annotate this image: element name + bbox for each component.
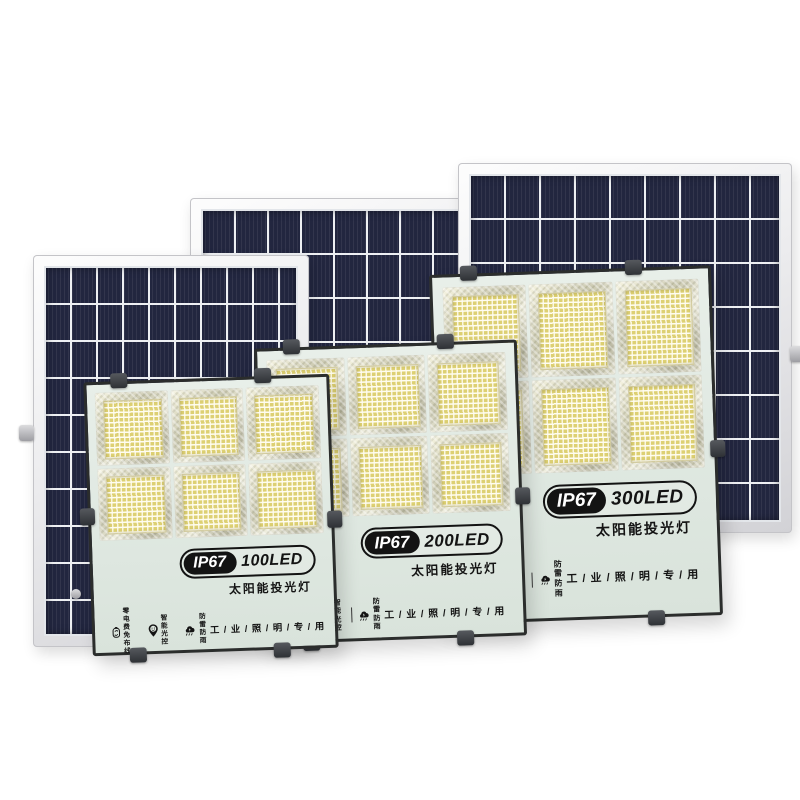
led-board xyxy=(181,472,241,532)
feature-separator xyxy=(177,623,178,638)
led-board xyxy=(359,445,424,510)
mounting-bracket xyxy=(790,346,800,362)
led-module xyxy=(170,388,245,463)
feature-line: 防雨 xyxy=(199,629,210,645)
battery-recycle-icon xyxy=(112,623,121,641)
mount-clip xyxy=(515,487,531,505)
feature-separator xyxy=(141,624,142,639)
feature-line: 防雷 xyxy=(373,597,385,614)
feature-separator xyxy=(351,608,352,623)
led-board xyxy=(541,387,611,466)
led-module xyxy=(615,278,702,374)
mount-clip xyxy=(273,642,291,658)
led-board xyxy=(356,363,421,428)
product-photo-scene: IP67 300LED 太阳能投光灯 零电费 免布线 智能 光控 xyxy=(0,0,800,800)
led-module xyxy=(95,391,170,466)
mounting-bracket xyxy=(19,425,34,441)
feature-label: 智能 光控 xyxy=(161,614,172,647)
feature-line: 防雨 xyxy=(373,614,385,631)
badge-pill: IP67 200LED xyxy=(360,523,503,559)
led-module xyxy=(618,374,705,470)
led-module xyxy=(532,377,619,473)
usage-label: 工 / 业 / 照 / 明 / 专 / 用 xyxy=(384,603,506,621)
mount-clip xyxy=(457,630,475,646)
led-module xyxy=(98,466,173,541)
feature-label: 防雷 防雨 xyxy=(554,559,567,598)
feature-weatherproof: 防雷 防雨 xyxy=(356,597,384,632)
led-module xyxy=(428,352,508,433)
mount-clip xyxy=(129,647,147,663)
feature-label: 防雷 防雨 xyxy=(373,597,385,632)
feature-line: 零电费 xyxy=(122,607,135,632)
led-module xyxy=(347,355,427,436)
led-board xyxy=(625,288,695,367)
led-module xyxy=(350,436,430,517)
led-board xyxy=(538,291,608,370)
rating-badge: IP67 200LED xyxy=(360,523,503,559)
led-module xyxy=(246,386,321,461)
feature-line: 防雷 xyxy=(199,613,210,629)
led-board xyxy=(628,384,698,463)
mount-clip xyxy=(110,373,128,389)
storm-cloud-icon xyxy=(538,571,551,587)
ip-rating-label: IP67 xyxy=(546,487,606,515)
mount-clip xyxy=(282,339,300,355)
feature-weatherproof: 防雷 防雨 xyxy=(538,559,567,598)
led-count-label: 200LED xyxy=(419,527,499,553)
mount-clip xyxy=(648,610,666,626)
feature-smart-control: 智能 光控 xyxy=(147,614,172,647)
feature-line: 防雨 xyxy=(554,578,567,598)
usage-label: 工 / 业 / 照 / 明 / 专 / 用 xyxy=(566,566,699,587)
feature-separator xyxy=(531,572,532,587)
usage-label: 工 / 业 / 照 / 明 / 专 / 用 xyxy=(210,618,326,636)
led-count-label: 300LED xyxy=(605,484,693,513)
feature-weatherproof: 防雷 防雨 xyxy=(183,613,211,646)
rating-badge: IP67 300LED xyxy=(542,480,697,519)
product-subtitle: 太阳能投光灯 xyxy=(229,577,313,597)
led-module xyxy=(430,433,510,514)
led-board xyxy=(436,361,501,426)
led-board xyxy=(106,474,166,534)
smart-pin-icon xyxy=(147,622,158,639)
led-module xyxy=(529,281,616,377)
ip-rating-label: IP67 xyxy=(364,530,420,555)
mount-clip xyxy=(625,260,643,276)
mount-clip xyxy=(80,508,96,526)
mount-clip xyxy=(710,440,726,458)
mount-clip xyxy=(459,265,477,281)
led-board xyxy=(254,394,314,454)
mount-clip xyxy=(436,334,454,350)
ip-rating-label: IP67 xyxy=(183,551,237,575)
badge-pill: IP67 100LED xyxy=(179,544,317,579)
feature-line: 智能 xyxy=(161,614,172,630)
mount-clip xyxy=(327,510,343,528)
mount-clip xyxy=(254,368,272,384)
storm-cloud-icon xyxy=(183,622,197,638)
product-subtitle: 太阳能投光灯 xyxy=(411,558,499,580)
led-module xyxy=(248,461,323,536)
mounting-screw xyxy=(71,589,81,599)
led-board xyxy=(257,469,317,529)
floodlight-100led: IP67 100LED 太阳能投光灯 零电费 免布线 智能 光控 xyxy=(83,374,338,656)
led-board xyxy=(179,396,239,456)
led-board xyxy=(439,442,504,507)
led-count-label: 100LED xyxy=(236,548,312,573)
product-subtitle: 太阳能投光灯 xyxy=(596,517,693,540)
feature-line: 光控 xyxy=(161,630,172,646)
feature-line: 防雷 xyxy=(554,559,567,579)
rating-badge: IP67 100LED xyxy=(179,544,317,579)
badge-pill: IP67 300LED xyxy=(542,480,697,519)
led-module xyxy=(173,463,248,538)
storm-cloud-icon xyxy=(357,606,371,622)
led-board xyxy=(103,399,163,459)
led-module-grid xyxy=(95,386,323,541)
feature-label: 防雷 防雨 xyxy=(199,613,211,646)
